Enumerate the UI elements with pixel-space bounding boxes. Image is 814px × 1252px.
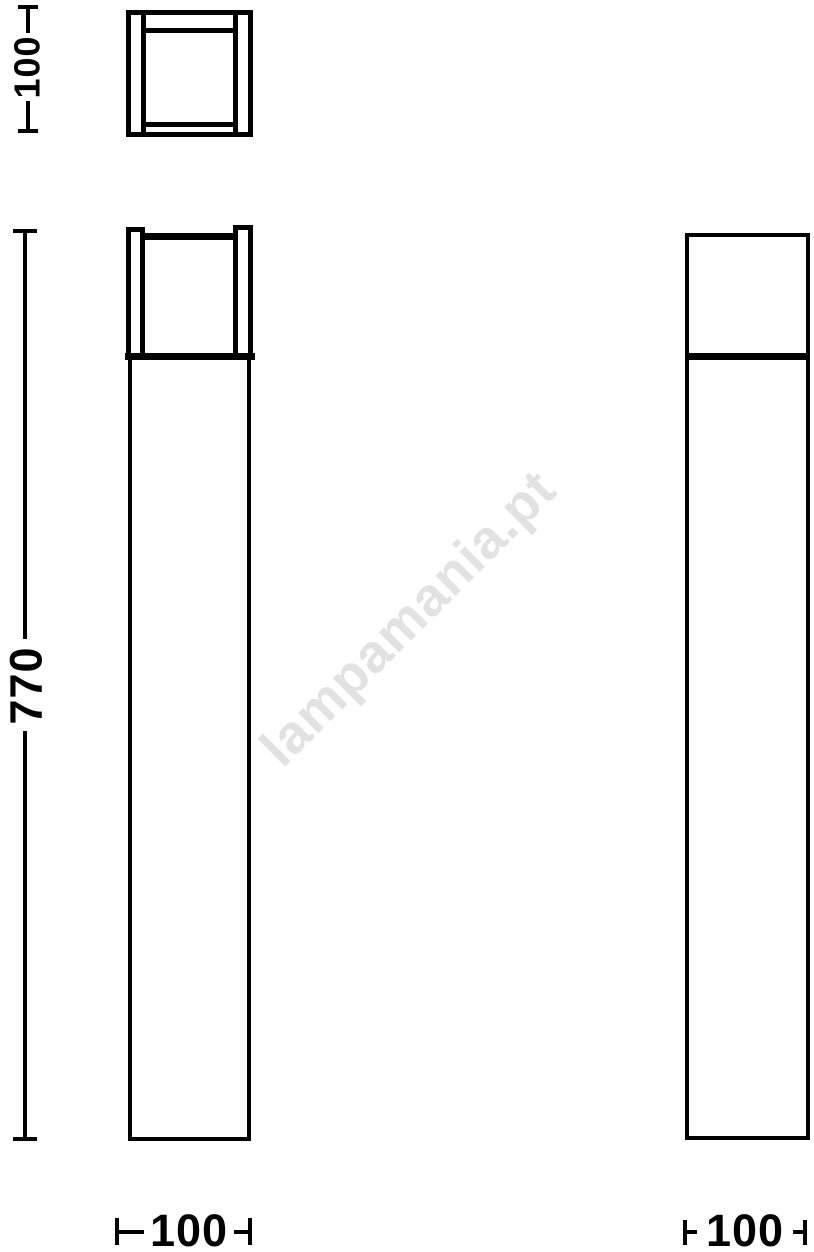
- side-view-head-divider: [685, 353, 810, 360]
- dim-line: [119, 1230, 144, 1234]
- dim-line: [793, 1230, 803, 1234]
- head-right-outer-line: [248, 225, 253, 353]
- watermark: lampamania.pt: [196, 406, 620, 830]
- dim-line: [23, 233, 27, 639]
- dim-value: 100: [10, 35, 46, 98]
- dim-line: [687, 1230, 697, 1234]
- tick: [248, 1218, 252, 1245]
- top-view-top-inner-line: [146, 28, 233, 33]
- body-bottom-line: [128, 1137, 251, 1141]
- head-top-bar: [143, 233, 235, 240]
- dim-label: 100: [700, 1209, 790, 1251]
- dim-value: 100: [706, 1208, 784, 1252]
- side-view-outline: [685, 233, 810, 1140]
- dim-label: 770: [2, 639, 50, 731]
- top-view-right-inner-line: [233, 15, 238, 132]
- body-right-line: [247, 360, 251, 1137]
- tick: [803, 1220, 807, 1245]
- dim-line: [234, 1230, 248, 1234]
- dim-value: 770: [4, 646, 49, 724]
- top-view-bottom-inner-line: [146, 122, 233, 127]
- dimension-drawing: lampamania.pt 100 770: [0, 0, 814, 1252]
- dim-value: 100: [150, 1208, 228, 1252]
- dim-label: 100: [144, 1209, 234, 1251]
- dim-line: [26, 101, 30, 129]
- dim-line: [23, 731, 27, 1137]
- body-left-line: [128, 360, 132, 1137]
- head-bottom-bar: [125, 353, 255, 360]
- head-left-inner-line: [140, 227, 145, 353]
- head-left-outer-line: [126, 227, 131, 353]
- head-right-inner-line: [233, 225, 238, 353]
- tick: [13, 1137, 37, 1141]
- watermark-text: lampamania.pt: [248, 458, 568, 778]
- tick: [18, 129, 38, 133]
- dim-label: 100: [4, 31, 52, 103]
- dim-line: [26, 9, 30, 33]
